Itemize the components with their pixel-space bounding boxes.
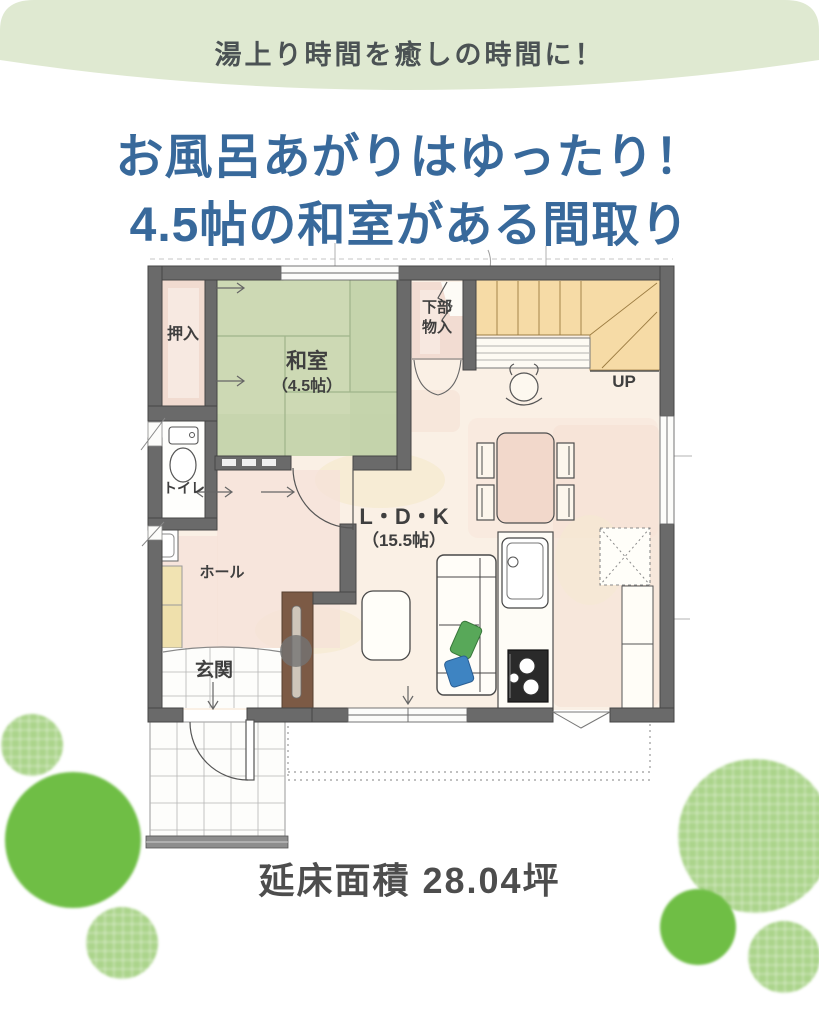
flyer-page: 湯上り時間を癒しの時間に！ お風呂あがりはゆったり！ 4.5帖の和室がある間取り <box>0 0 819 1024</box>
label-genkan: 玄関 <box>195 658 233 681</box>
kitchen-counter <box>498 532 553 710</box>
label-under-stairs-2: 物入 <box>422 318 452 336</box>
label-hall: ホール <box>199 564 244 581</box>
label-oshiire: 押入 <box>167 324 199 343</box>
label-stairs-up: UP <box>612 372 636 391</box>
toilet-room <box>162 421 205 518</box>
label-toilet: トイレ <box>163 480 205 496</box>
terrace-outline <box>288 724 650 780</box>
coffee-table <box>362 591 410 660</box>
total-floor-area: 延床面積 28.04坪 <box>0 852 819 904</box>
label-ldk-size: （15.5帖） <box>362 530 446 550</box>
dining-set <box>477 433 574 523</box>
label-washitsu-size: （4.5帖） <box>272 376 342 395</box>
dining-chair <box>557 443 574 478</box>
toilet-bowl <box>170 448 196 482</box>
staircase <box>470 280 660 371</box>
label-washitsu: 和室 <box>286 349 328 373</box>
label-ldk: L・D・K <box>359 504 448 529</box>
toilet-tank <box>169 427 198 444</box>
entrance-porch <box>146 722 288 848</box>
dining-table <box>497 433 554 523</box>
tv-board <box>280 592 313 710</box>
dining-chair <box>557 485 574 520</box>
dining-chair <box>477 443 494 478</box>
refrigerator-space <box>600 528 650 585</box>
oshiire-closet <box>162 280 205 406</box>
dining-chair <box>477 485 494 520</box>
kitchen-vent-mark <box>553 712 610 728</box>
kitchen-back-cabinet <box>622 586 653 708</box>
entrance-door-leaf <box>246 720 254 780</box>
sofa <box>437 555 496 695</box>
label-under-stairs-1: 下部 <box>422 298 452 316</box>
sliding-door-hatch <box>222 459 276 466</box>
